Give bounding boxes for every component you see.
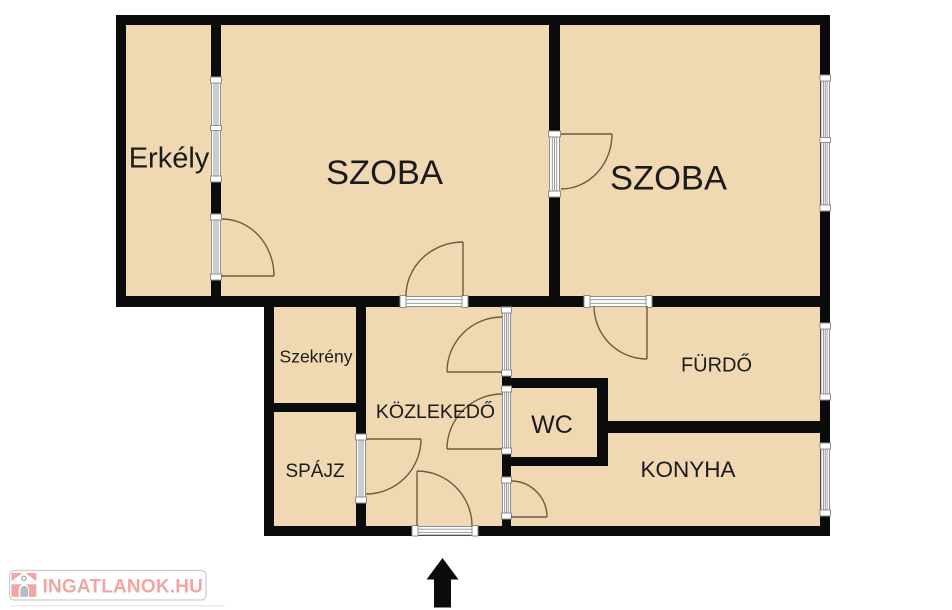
svg-text:Szekrény: Szekrény	[280, 347, 353, 367]
svg-text:KÖZLEKEDŐ: KÖZLEKEDŐ	[376, 400, 495, 423]
svg-text:SZOBA: SZOBA	[610, 160, 727, 198]
svg-text:WC: WC	[531, 411, 573, 439]
svg-text:KONYHA: KONYHA	[640, 457, 735, 482]
svg-text:Erkély: Erkély	[129, 143, 210, 175]
svg-text:INGATLANOK.HU: INGATLANOK.HU	[43, 576, 204, 597]
svg-text:SPÁJZ: SPÁJZ	[285, 461, 345, 482]
svg-text:FÜRDŐ: FÜRDŐ	[681, 354, 752, 377]
svg-text:SZOBA: SZOBA	[326, 154, 443, 192]
